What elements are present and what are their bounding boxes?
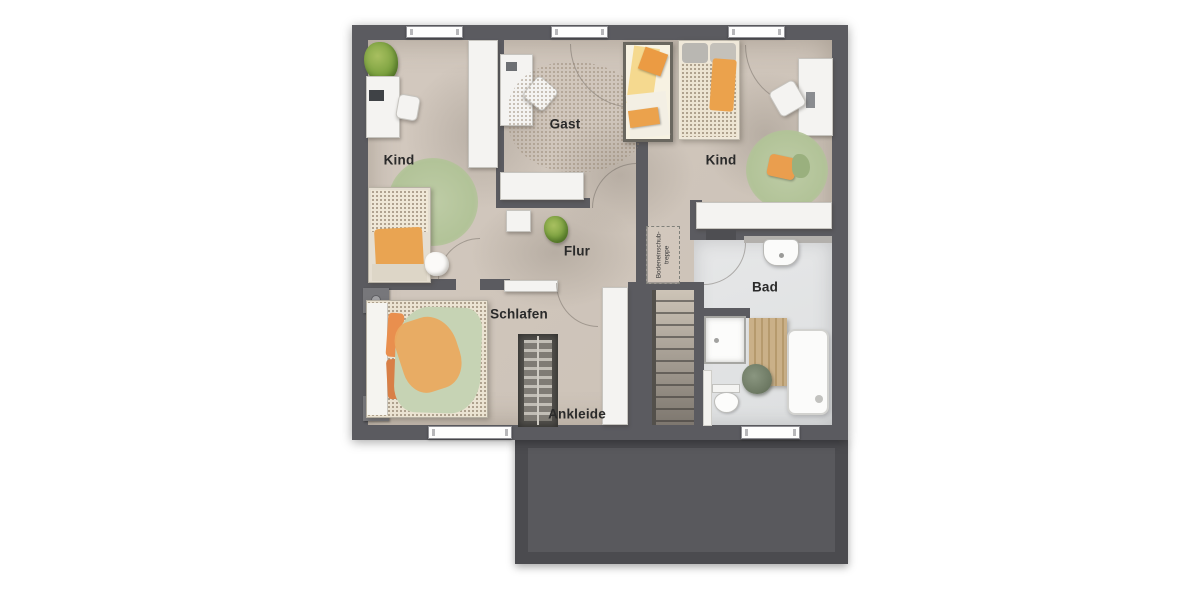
window-top-1 [406, 26, 463, 38]
bed-kind-right-pillow1 [682, 43, 708, 63]
bathtub-faucet [815, 395, 823, 403]
sink-drain [779, 253, 784, 258]
attic-hatch-line2: treppe [663, 232, 671, 279]
window-top-3 [728, 26, 785, 38]
chair-kind-left [395, 93, 421, 121]
desk-kind-left [366, 76, 400, 138]
attic-hatch-box: Bodeneinschub- treppe [646, 226, 680, 284]
bed-kind-left-blanket [374, 227, 424, 269]
window-bottom-1 [428, 426, 512, 439]
room-label-ankleide: Ankleide [548, 407, 606, 422]
room-label-gast: Gast [550, 117, 581, 132]
room-label-kind-right: Kind [706, 153, 737, 168]
room-label-kind-left: Kind [384, 153, 415, 168]
bed-gast [623, 42, 673, 142]
window-top-2 [551, 26, 608, 38]
bathtub [787, 329, 829, 415]
desk-gast-item [506, 62, 517, 71]
halfwall-cap [504, 280, 558, 292]
sideboard-kind-right [696, 202, 832, 229]
sideboard-flur [500, 172, 584, 200]
desk-kind-right-item [806, 92, 815, 108]
stool-flower [425, 252, 449, 276]
window-bottom-2 [741, 426, 800, 439]
plant-bad [742, 364, 772, 394]
room-label-flur: Flur [564, 244, 590, 259]
roof-slab-inner [528, 448, 835, 552]
attic-hatch-line1: Bodeneinschub- [655, 232, 663, 279]
laptop-kind-left [369, 90, 384, 101]
floorplan-canvas: Bodeneinschub- treppe [0, 0, 1200, 600]
bed-kind-left-foot [372, 264, 427, 281]
radiator-kind-right [706, 230, 736, 240]
room-label-bad: Bad [752, 280, 778, 295]
toy-kind-right [792, 154, 810, 178]
staircase-shadow [656, 290, 694, 425]
shower [704, 316, 746, 364]
clothes-rack-rail [537, 336, 539, 425]
bed-schlafen-headboard [367, 303, 388, 415]
wardrobe-ankleide [602, 287, 628, 425]
bed-kind-right-blanket [709, 58, 737, 112]
bed-kind-right [678, 40, 740, 140]
attic-hatch-label: Bodeneinschub- treppe [655, 232, 671, 279]
bath-partition [703, 370, 712, 426]
bed-kind-left-duvet [371, 190, 428, 232]
staircase-stringer [652, 290, 656, 425]
shelf-flur [506, 210, 531, 232]
room-label-schlafen: Schlafen [490, 307, 548, 322]
wardrobe-kind-left [468, 40, 498, 168]
plant-flur [544, 216, 568, 243]
bed-kind-left [368, 187, 431, 283]
shower-drain [714, 338, 719, 343]
bed-schlafen [366, 300, 488, 418]
sink [763, 239, 799, 266]
